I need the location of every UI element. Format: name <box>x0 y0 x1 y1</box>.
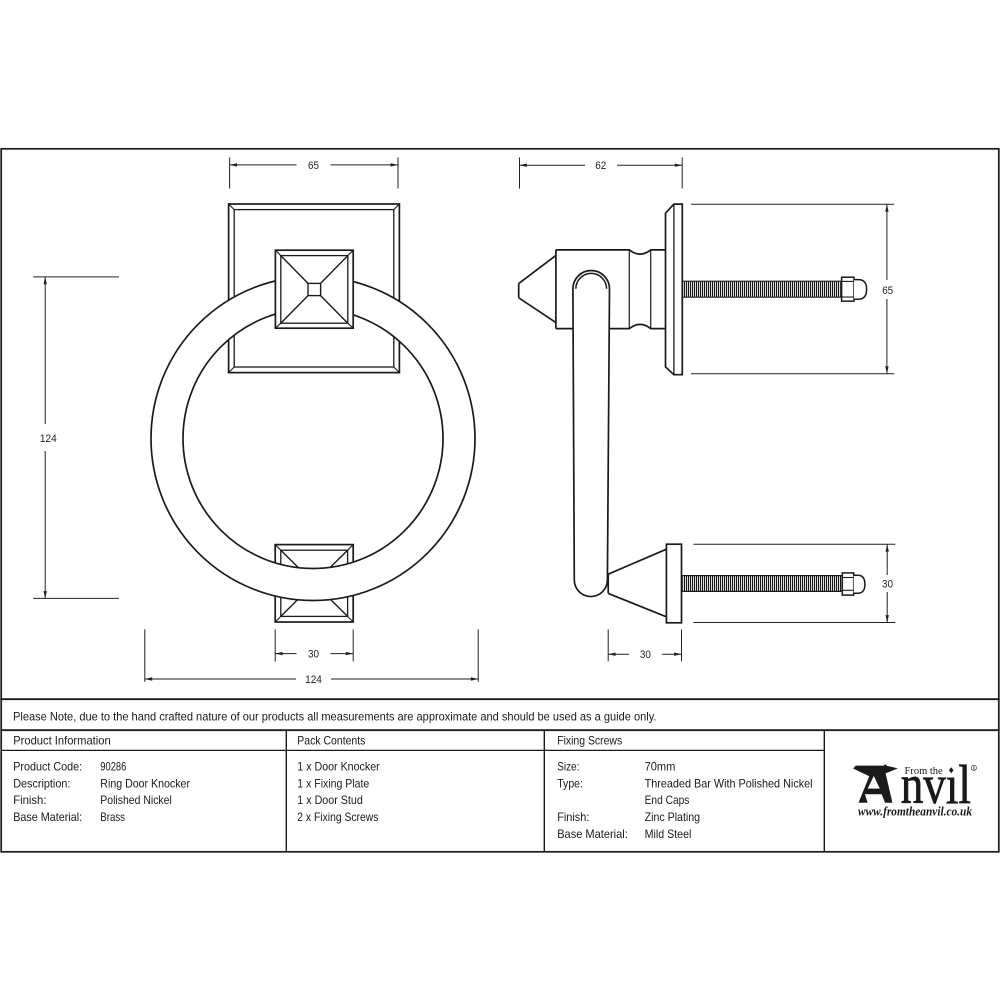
svg-text:www.fromtheanvil.co.uk: www.fromtheanvil.co.uk <box>858 804 972 819</box>
svg-text:Please Note, due to the hand c: Please Note, due to the hand crafted nat… <box>13 710 657 724</box>
svg-text:Product Information: Product Information <box>13 734 111 748</box>
svg-text:Pack Contents: Pack Contents <box>297 734 365 748</box>
svg-text:R: R <box>973 766 976 771</box>
svg-text:Polished Nickel: Polished Nickel <box>100 793 172 807</box>
svg-text:Product Code:: Product Code: <box>13 760 82 774</box>
svg-text:Fixing Screws: Fixing Screws <box>557 734 622 748</box>
svg-text:1 x Fixing Plate: 1 x Fixing Plate <box>297 776 369 790</box>
svg-text:30: 30 <box>308 648 319 660</box>
svg-text:Zinc Plating: Zinc Plating <box>645 810 701 824</box>
svg-text:124: 124 <box>40 433 57 445</box>
svg-text:30: 30 <box>882 578 893 590</box>
svg-text:Brass: Brass <box>100 810 125 824</box>
svg-text:Ring Door Knocker: Ring Door Knocker <box>100 776 190 790</box>
svg-text:Base Material:: Base Material: <box>13 810 82 824</box>
svg-text:Base Material:: Base Material: <box>557 827 628 841</box>
svg-text:2 x Fixing Screws: 2 x Fixing Screws <box>297 810 378 824</box>
svg-text:70mm: 70mm <box>645 760 676 774</box>
svg-text:Threaded Bar With Polished Nic: Threaded Bar With Polished Nickel <box>645 776 813 790</box>
svg-text:From the: From the <box>905 766 944 777</box>
svg-text:End Caps: End Caps <box>645 793 690 807</box>
svg-text:124: 124 <box>305 674 322 686</box>
svg-text:Description:: Description: <box>13 776 70 790</box>
svg-text:Size:: Size: <box>557 760 579 774</box>
svg-text:65: 65 <box>882 285 893 297</box>
svg-text:30: 30 <box>640 649 651 661</box>
svg-text:62: 62 <box>595 160 606 172</box>
svg-text:Type:: Type: <box>557 776 583 790</box>
svg-text:90286: 90286 <box>100 760 126 774</box>
svg-text:Finish:: Finish: <box>13 793 46 807</box>
svg-text:65: 65 <box>308 160 319 172</box>
svg-text:1 x Door Knocker: 1 x Door Knocker <box>297 760 379 774</box>
svg-text:1 x Door Stud: 1 x Door Stud <box>297 793 363 807</box>
svg-text:Mild Steel: Mild Steel <box>645 827 692 841</box>
svg-text:Finish:: Finish: <box>557 810 589 824</box>
